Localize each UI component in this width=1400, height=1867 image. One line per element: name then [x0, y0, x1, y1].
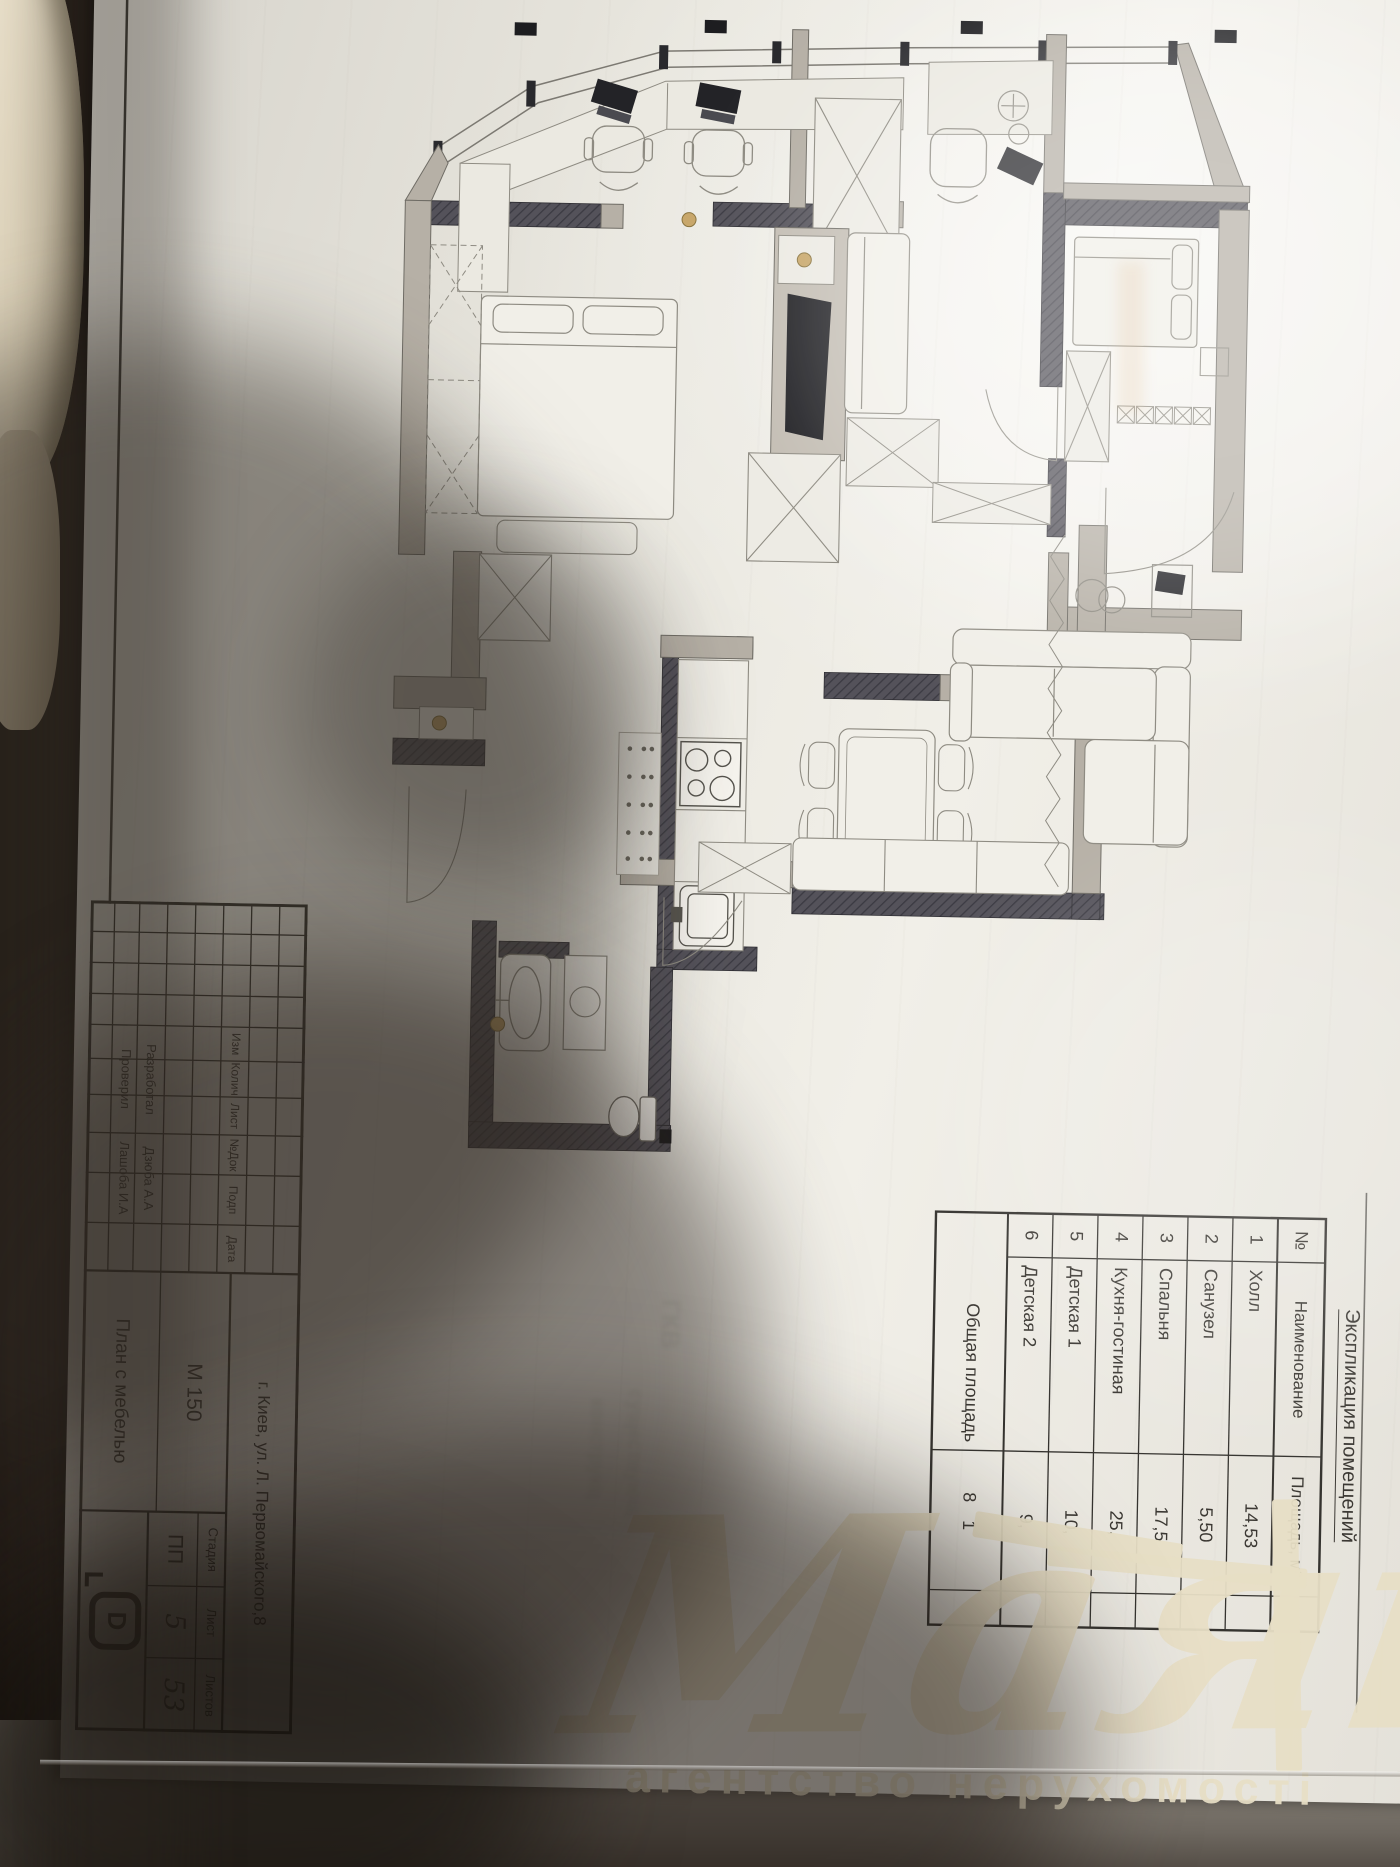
- wardrobe-x-icon: [1064, 351, 1110, 462]
- tb-sheet-label: Лист: [204, 1587, 219, 1659]
- tb-logo-letter: D: [102, 1601, 130, 1642]
- tb-sheets-label: Листов: [202, 1659, 217, 1733]
- tb-stage-label: Стадия: [205, 1513, 220, 1587]
- sideboard-x-icon: [932, 482, 1051, 524]
- corner-sofa-icon: [947, 629, 1191, 848]
- tb-col-izm: Изм: [229, 1027, 242, 1061]
- exp-row-num: 2: [1201, 1217, 1221, 1261]
- exp-row-num: 5: [1066, 1214, 1086, 1258]
- title-block: Изм Колич Лист №Док Подп Дата Разработал…: [75, 900, 308, 1734]
- tb-col-podp: Подп: [226, 1175, 240, 1225]
- window-anchor-tabs: [515, 12, 1237, 49]
- sofa-daybed-icon: [844, 233, 909, 414]
- tb-sheet-value: 5: [159, 1586, 189, 1659]
- tp-holder-icon: [659, 1129, 671, 1143]
- office-chair-icon: [929, 128, 986, 203]
- exp-row-name: Санузел: [1200, 1269, 1220, 1339]
- cabinet-x-icon: [698, 842, 791, 894]
- door-knob-dot: [682, 213, 696, 227]
- watermark-stroke: [1272, 1499, 1302, 1771]
- exp-header-num: №: [1291, 1218, 1311, 1262]
- tb-name-checker: Лашоба И.А: [116, 1133, 131, 1223]
- exp-row-num: 1: [1246, 1218, 1266, 1262]
- bench-sofa-icon: [792, 838, 1069, 895]
- entry-cabinet: [419, 707, 474, 740]
- photo-of-floor-plan-sheet: Изм Колич Лист №Док Подп Дата Разработал…: [0, 0, 1400, 1867]
- exp-total-label: Общая площадь: [961, 1212, 984, 1442]
- hall-wardrobe-x: [478, 554, 552, 641]
- exp-header-name: Наименование: [1289, 1262, 1311, 1456]
- bathtub-icon: [494, 954, 551, 1051]
- tb-col-ndok: №Док: [227, 1135, 240, 1175]
- faint-marker-smudge: [1118, 262, 1144, 412]
- laptop-icon: [997, 146, 1044, 185]
- door-knob-dot: [490, 1017, 504, 1031]
- wardrobe-x-icon: [747, 453, 841, 563]
- exp-row-name: Холл: [1245, 1270, 1265, 1313]
- tb-sheets-value: 53: [158, 1658, 188, 1733]
- tb-col-data: Дата: [225, 1225, 239, 1273]
- double-bed-icon: [477, 296, 677, 520]
- bed-bench-icon: [497, 520, 638, 555]
- tb-name-developer: Дзюба А.А: [141, 1133, 156, 1223]
- tb-role-developer: Разработал: [143, 1025, 159, 1133]
- drawing-sheet: Изм Колич Лист №Док Подп Дата Разработал…: [0, 0, 1400, 1867]
- sink-icon: [671, 885, 734, 946]
- washing-machine-icon: [563, 955, 607, 1050]
- mosaic-dots: [616, 732, 661, 875]
- office-chair-icon: [684, 130, 753, 195]
- door-arc: [407, 786, 466, 903]
- tb-col-list: Лист: [228, 1097, 241, 1135]
- exp-row-name: Спальня: [1155, 1268, 1175, 1341]
- tb-stage-value: ПП: [163, 1512, 186, 1586]
- stove-icon: [680, 742, 741, 807]
- exp-row-num: 3: [1156, 1216, 1176, 1260]
- exp-row-name: Кухня-гостиная: [1109, 1267, 1130, 1395]
- exp-row-name: Детская 2: [1020, 1265, 1040, 1347]
- desk-by-window: [928, 58, 1053, 136]
- exp-row-num: 4: [1111, 1215, 1131, 1259]
- tb-role-checker: Проверил: [118, 1025, 134, 1133]
- exp-row-name: Детская 1: [1065, 1266, 1085, 1348]
- tb-col-kol: Колич: [229, 1061, 242, 1097]
- cabinet-x-icon: [846, 418, 939, 488]
- exp-row-num: 6: [1021, 1213, 1041, 1257]
- tv-unit: [770, 227, 848, 460]
- tb-scale: М 150: [180, 1272, 207, 1512]
